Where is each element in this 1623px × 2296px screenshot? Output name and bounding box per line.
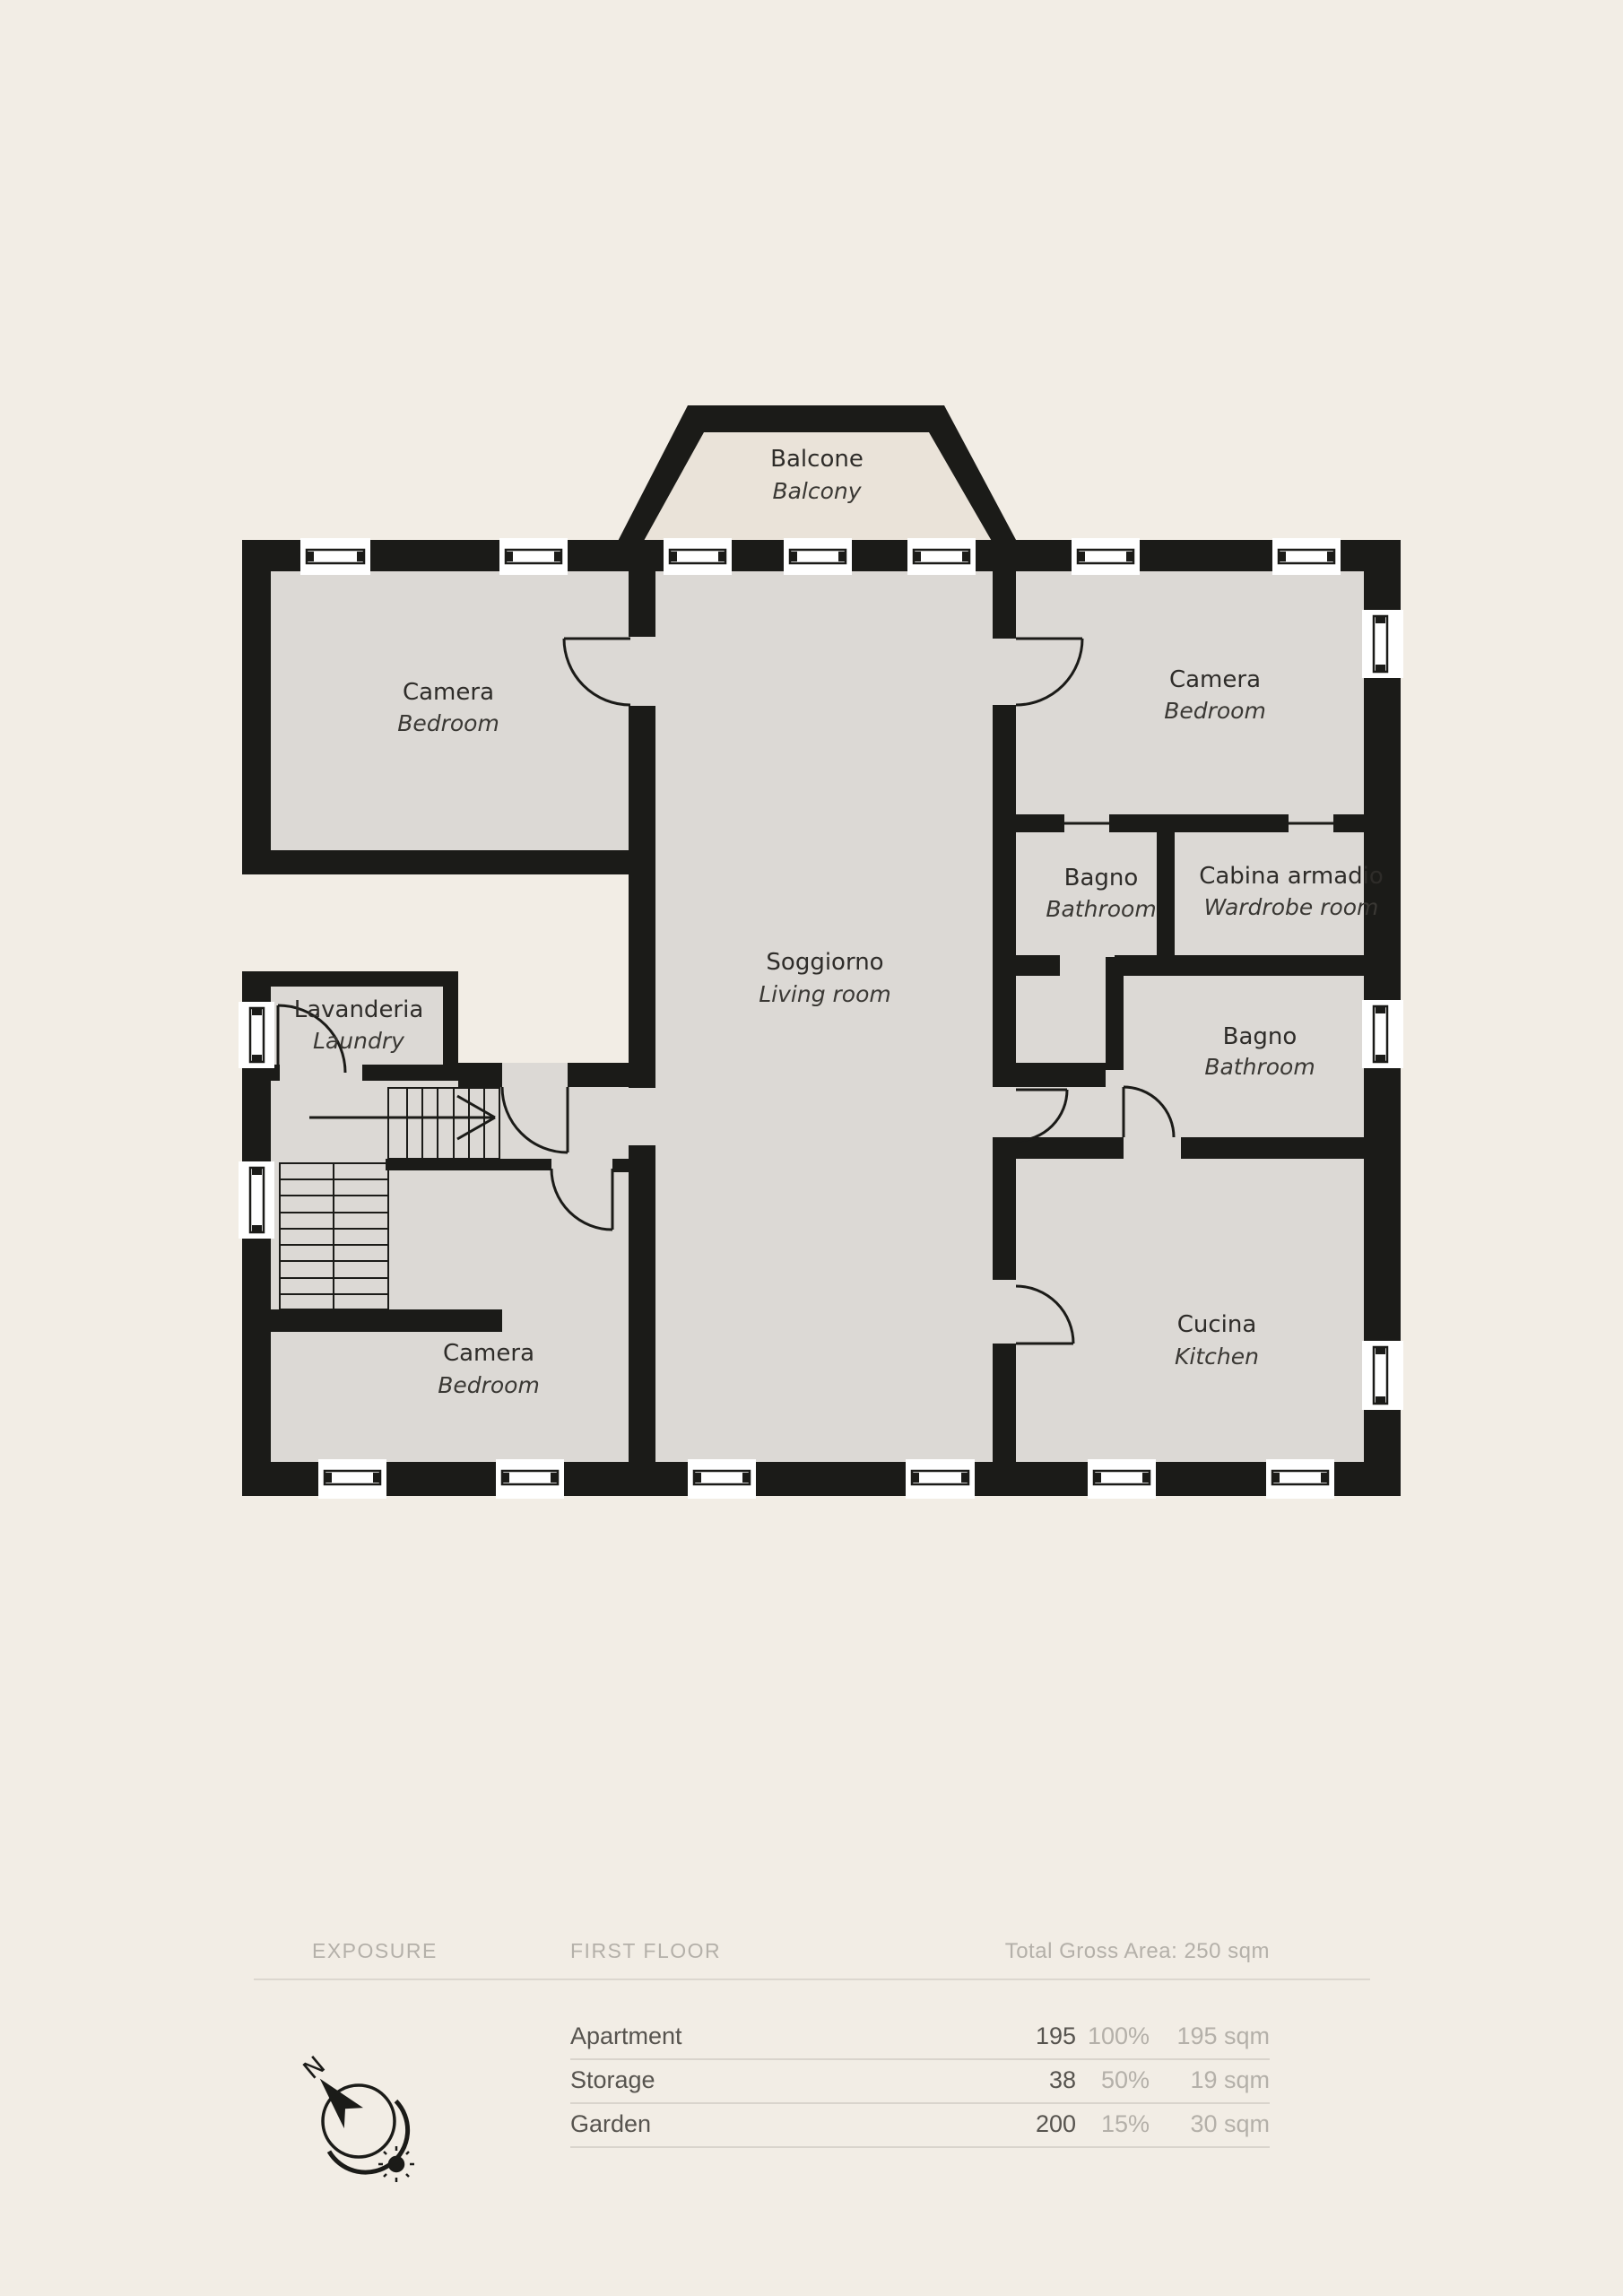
svg-text:Bedroom: Bedroom (397, 710, 499, 736)
row-area: 30 sqm (1150, 2104, 1270, 2146)
svg-text:Bathroom: Bathroom (1204, 1054, 1315, 1080)
svg-text:Camera: Camera (403, 679, 494, 706)
table-row-apartment: Apartment 195 100% 195 sqm (570, 2016, 1270, 2060)
row-percent: 15% (1076, 2104, 1150, 2146)
exposure-header: EXPOSURE (312, 1939, 438, 1963)
svg-text:Lavanderia: Lavanderia (294, 996, 424, 1023)
row-value: 195 (959, 2016, 1076, 2058)
table-row-storage: Storage 38 50% 19 sqm (570, 2060, 1270, 2104)
compass-north-letter: N (298, 2050, 331, 2085)
floor-plan-drawing: Balcone Balcony Camera Bedroom Camera Be… (0, 0, 1623, 2296)
svg-text:Soggiorno: Soggiorno (766, 949, 883, 976)
row-area: 195 sqm (1150, 2016, 1270, 2058)
svg-text:Bagno: Bagno (1223, 1023, 1298, 1050)
table-row-garden: Garden 200 15% 30 sqm (570, 2104, 1270, 2148)
row-percent: 50% (1076, 2060, 1150, 2102)
row-name: Garden (570, 2104, 959, 2146)
svg-text:Cucina: Cucina (1177, 1311, 1257, 1338)
total-gross-area: Total Gross Area: 250 sqm (1005, 1939, 1270, 1964)
exterior-entry-slot (458, 971, 629, 1063)
sun-icon (378, 2146, 414, 2182)
svg-text:Camera: Camera (1169, 666, 1261, 693)
svg-text:Balcone: Balcone (770, 446, 864, 473)
compass-icon: N (298, 2050, 414, 2182)
legend-divider (254, 1979, 1370, 1980)
floor-plan-page: { "plan": { "rooms": [ {"id": "balcony",… (0, 0, 1623, 2296)
row-name: Storage (570, 2060, 959, 2102)
svg-text:Wardrobe room: Wardrobe room (1204, 894, 1379, 920)
row-percent: 100% (1076, 2016, 1150, 2058)
area-table: Apartment 195 100% 195 sqm Storage 38 50… (570, 2016, 1270, 2148)
svg-text:Bagno: Bagno (1064, 865, 1139, 891)
exterior-notch (242, 874, 629, 971)
svg-text:Cabina armadio: Cabina armadio (1199, 863, 1384, 890)
svg-text:Bedroom: Bedroom (438, 1372, 540, 1398)
svg-text:Bathroom: Bathroom (1046, 896, 1156, 922)
svg-text:Camera: Camera (443, 1340, 534, 1367)
row-value: 38 (959, 2060, 1076, 2102)
row-area: 19 sqm (1150, 2060, 1270, 2102)
floor-header: FIRST FLOOR (570, 1939, 721, 1963)
svg-text:Laundry: Laundry (313, 1028, 405, 1054)
svg-text:Balcony: Balcony (772, 478, 862, 504)
row-value: 200 (959, 2104, 1076, 2146)
row-name: Apartment (570, 2016, 959, 2058)
svg-text:Living room: Living room (759, 981, 891, 1007)
svg-text:Kitchen: Kitchen (1175, 1344, 1259, 1370)
svg-text:Bedroom: Bedroom (1164, 698, 1266, 724)
